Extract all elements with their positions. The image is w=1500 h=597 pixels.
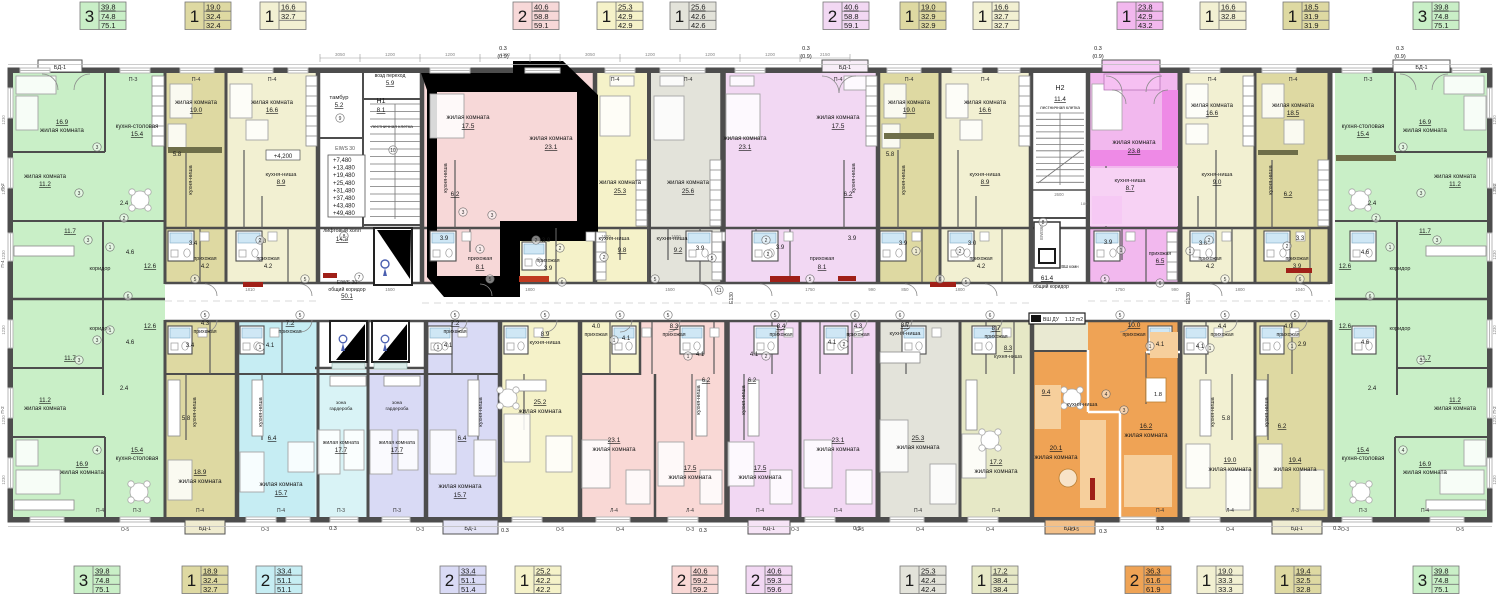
svg-text:О-5: О-5 [121,527,130,533]
svg-text:(0.9): (0.9) [497,54,508,60]
svg-text:П-3: П-3 [133,508,141,514]
svg-text:О-5: О-5 [1071,527,1080,533]
svg-text:0.3: 0.3 [1333,526,1341,532]
svg-text:2: 2 [959,249,962,255]
svg-text:1: 1 [1389,245,1392,251]
svg-text:1230: 1230 [1492,115,1497,125]
svg-text:4.2: 4.2 [201,264,210,270]
svg-text:18.9: 18.9 [203,567,218,576]
svg-text:12.6: 12.6 [1339,263,1352,270]
svg-text:прихожая: прихожая [1285,256,1308,262]
svg-text:16.6: 16.6 [266,107,279,114]
svg-text:3: 3 [85,7,94,26]
svg-text:жилая комната: жилая комната [1272,103,1314,109]
svg-text:11: 11 [716,288,721,294]
svg-text:5: 5 [454,313,457,319]
svg-text:прихожая: прихожая [846,332,869,338]
svg-text:прихожая: прихожая [443,329,466,335]
svg-text:17.7: 17.7 [391,447,404,454]
svg-text:59.6: 59.6 [767,585,782,594]
svg-text:коридор: коридор [90,266,111,272]
svg-text:39.8: 39.8 [95,567,110,576]
svg-text:51.4: 51.4 [461,585,476,594]
svg-text:4.1: 4.1 [622,336,631,342]
svg-text:H1: H1 [377,98,386,105]
svg-text:зона: зона [336,401,346,406]
svg-text:Л-4: Л-4 [610,508,618,514]
svg-text:E130: E130 [1186,292,1192,304]
svg-text:П-4: П-4 [905,77,914,83]
svg-text:38.4: 38.4 [993,576,1008,585]
svg-text:кухня-столовая: кухня-столовая [1342,124,1385,130]
svg-text:жилая комната: жилая комната [446,114,490,121]
svg-text:жилая комната: жилая комната [1434,406,1476,412]
svg-text:75.1: 75.1 [1434,585,1449,594]
svg-text:жилая комната: жилая комната [1034,454,1078,461]
svg-text:2.4: 2.4 [120,386,129,392]
svg-text:1800: 1800 [525,287,535,292]
svg-text:жилая комната: жилая комната [24,174,66,180]
svg-text:32.8: 32.8 [1296,585,1311,594]
svg-text:2: 2 [1375,216,1378,222]
svg-text:19.0: 19.0 [903,107,916,114]
svg-text:EIWS 30: EIWS 30 [337,280,358,286]
svg-text:прихожая: прихожая [969,256,992,262]
svg-text:П-3: П-3 [337,508,345,514]
svg-text:коридор: коридор [1390,266,1411,272]
svg-text:2: 2 [445,571,454,590]
svg-text:32.7: 32.7 [203,585,218,594]
svg-text:гардероба: гардероба [330,406,353,412]
svg-text:19.0: 19.0 [190,107,203,114]
svg-text:6.2: 6.2 [748,378,757,384]
svg-text:П-4: П-4 [834,508,842,514]
svg-text:16.6: 16.6 [1221,3,1236,12]
svg-text:19.4: 19.4 [1296,567,1311,576]
svg-text:прихожая: прихожая [278,329,301,335]
svg-text:4: 4 [1402,448,1405,454]
svg-text:6.4: 6.4 [268,435,277,442]
svg-text:ВШ комн: ВШ комн [1061,264,1079,269]
svg-text:6: 6 [561,280,564,286]
svg-text:+4,200: +4,200 [274,154,293,160]
svg-text:42.6: 42.6 [691,12,706,21]
svg-text:БД-1: БД-1 [54,65,66,71]
svg-text:лестничная клетка: лестничная клетка [1040,105,1080,110]
svg-text:8.9: 8.9 [277,179,286,186]
svg-text:П-4: П-4 [611,77,620,83]
svg-text:+19,480: +19,480 [333,173,356,179]
svg-text:50.1: 50.1 [341,294,353,300]
svg-text:40.6: 40.6 [534,3,549,12]
svg-text:5: 5 [965,280,968,286]
svg-text:жилая комната: жилая комната [1403,127,1447,134]
svg-text:П-3: П-3 [393,508,401,514]
svg-text:5: 5 [809,277,812,283]
svg-text:990: 990 [1171,287,1179,292]
svg-text:кухня-ниша: кухня-ниша [188,164,194,194]
svg-text:кухня-ниша: кухня-ниша [1268,164,1274,194]
svg-text:33.4: 33.4 [277,567,292,576]
svg-text:15.7: 15.7 [275,490,288,497]
svg-text:1: 1 [437,345,440,351]
svg-text:42.4: 42.4 [921,585,936,594]
svg-text:59.2: 59.2 [693,585,708,594]
svg-text:кухня-ниша: кухня-ниша [258,396,264,426]
svg-text:О-3: О-3 [261,527,270,533]
svg-text:6: 6 [854,313,857,319]
svg-text:5.8: 5.8 [1222,416,1231,422]
svg-text:гардероба: гардероба [386,406,409,412]
svg-text:25.3: 25.3 [921,567,936,576]
svg-text:1800: 1800 [1235,287,1245,292]
svg-text:П-4: П-4 [192,77,201,83]
svg-text:О-4: О-4 [916,527,925,533]
svg-text:ВШ ДУ: ВШ ДУ [1043,317,1060,323]
svg-text:П-4: П-4 [1421,508,1429,514]
svg-text:3: 3 [1436,238,1439,244]
svg-text:2.4: 2.4 [1368,386,1377,392]
svg-text:75.1: 75.1 [1434,21,1449,30]
svg-text:П-4: П-4 [1208,77,1217,83]
svg-text:1: 1 [1209,346,1212,352]
svg-text:1: 1 [977,571,986,590]
svg-text:БД-1: БД-1 [1291,526,1303,532]
svg-text:40.6: 40.6 [844,3,859,12]
svg-text:1230: 1230 [1,250,6,260]
svg-text:5: 5 [204,313,207,319]
svg-text:жилая комната: жилая комната [379,440,415,446]
svg-text:П-4: П-4 [0,260,5,268]
svg-text:5: 5 [304,277,307,283]
svg-text:2: 2 [123,216,126,222]
svg-text:11.2: 11.2 [1449,181,1461,188]
svg-text:4.1: 4.1 [1196,344,1205,350]
svg-text:59.2: 59.2 [693,576,708,585]
svg-text:17.2: 17.2 [990,459,1003,466]
svg-text:3.9: 3.9 [848,236,857,242]
svg-text:1230: 1230 [1492,415,1497,425]
svg-text:1: 1 [905,7,914,26]
svg-text:59.1: 59.1 [844,21,859,30]
svg-text:кухня-столовая: кухня-столовая [1342,456,1385,462]
svg-text:74.8: 74.8 [95,576,110,585]
svg-text:42.2: 42.2 [536,576,551,585]
svg-text:О-5: О-5 [556,527,565,533]
svg-text:1: 1 [109,328,112,334]
svg-text:(0.9): (0.9) [800,54,811,60]
svg-text:жилая комната: жилая комната [667,180,709,186]
svg-text:кухня-ниша: кухня-ниша [1210,396,1216,426]
svg-text:жилая комната: жилая комната [1208,466,1252,473]
svg-text:42.2: 42.2 [536,585,551,594]
svg-text:180: 180 [1081,201,1088,206]
svg-text:1.12 m2: 1.12 m2 [1065,317,1083,323]
svg-text:5: 5 [544,313,547,319]
svg-text:кухня-столовая: кухня-столовая [116,124,159,130]
svg-text:2: 2 [535,238,538,244]
svg-text:кухня-ниша: кухня-ниша [192,396,198,426]
svg-text:кухня-ниша: кухня-ниша [1115,178,1147,184]
svg-text:3: 3 [79,571,88,590]
svg-text:8.7: 8.7 [992,325,1001,332]
svg-text:5: 5 [1104,277,1107,283]
svg-text:11.7: 11.7 [64,355,76,362]
svg-text:жилая комната: жилая комната [599,180,641,186]
svg-text:42.4: 42.4 [921,576,936,585]
svg-text:1200: 1200 [445,52,456,57]
svg-text:П-2: П-2 [1492,406,1497,414]
svg-text:61.6: 61.6 [1146,576,1161,585]
svg-text:Л-3: Л-3 [1291,508,1299,514]
svg-text:П-4: П-4 [268,77,277,83]
svg-text:12.6: 12.6 [144,263,157,270]
svg-text:2: 2 [603,255,606,261]
svg-text:0.3: 0.3 [802,46,810,52]
svg-text:П-4: П-4 [196,508,204,514]
svg-text:Л-4: Л-4 [1226,508,1234,514]
svg-text:1200: 1200 [385,52,396,57]
svg-text:E130: E130 [729,292,735,304]
svg-text:31.9: 31.9 [1304,12,1319,21]
svg-text:1: 1 [1149,344,1152,350]
svg-text:11.2: 11.2 [39,181,51,188]
svg-text:16.6: 16.6 [1206,110,1219,117]
svg-text:6.2: 6.2 [451,191,460,198]
svg-text:4.0: 4.0 [1284,324,1293,330]
svg-text:15.4: 15.4 [1357,447,1370,454]
svg-text:кухня-ниша: кухня-ниша [890,331,922,337]
svg-text:32.7: 32.7 [281,12,296,21]
svg-text:1: 1 [978,7,987,26]
svg-text:12.6: 12.6 [1339,323,1352,330]
svg-text:8.7: 8.7 [901,322,910,329]
svg-text:9: 9 [339,116,342,122]
svg-text:возд переход: возд переход [375,73,406,79]
svg-text:1230: 1230 [1492,185,1497,195]
svg-text:11.7: 11.7 [64,228,76,235]
svg-text:+37,480: +37,480 [333,196,356,202]
svg-text:3: 3 [1420,191,1423,197]
svg-text:16.9: 16.9 [1419,461,1432,468]
svg-text:2: 2 [1286,244,1289,250]
svg-text:6.5: 6.5 [1156,258,1165,265]
svg-text:5: 5 [711,256,714,262]
svg-text:2: 2 [518,7,527,26]
svg-text:2: 2 [843,342,846,348]
svg-text:1: 1 [1202,571,1211,590]
svg-text:4.3: 4.3 [854,324,863,330]
svg-text:кухня-ниша: кухня-ниша [696,384,702,414]
svg-text:1230: 1230 [1492,475,1497,485]
svg-text:БД-1: БД-1 [839,65,851,71]
svg-text:1800: 1800 [955,287,965,292]
svg-text:1: 1 [479,247,482,253]
svg-text:H2: H2 [1056,85,1065,92]
svg-text:3.9: 3.9 [899,241,908,247]
svg-text:5.8: 5.8 [182,416,191,422]
svg-text:51.1: 51.1 [277,585,292,594]
svg-text:18.9: 18.9 [194,469,207,476]
svg-text:жилая комната: жилая комната [1112,139,1156,146]
svg-text:42.9: 42.9 [618,21,633,30]
svg-text:2: 2 [828,7,837,26]
svg-text:42.6: 42.6 [691,21,706,30]
svg-text:прихожая: прихожая [1276,332,1299,338]
svg-text:32.9: 32.9 [921,12,936,21]
svg-text:0.3: 0.3 [1094,46,1102,52]
svg-text:9.0: 9.0 [1213,179,1222,186]
svg-text:7.2: 7.2 [286,320,295,327]
svg-text:4.6: 4.6 [1361,340,1370,346]
svg-text:19.0: 19.0 [921,3,936,12]
svg-text:33.3: 33.3 [1218,576,1233,585]
svg-text:3: 3 [1123,408,1126,414]
svg-text:1: 1 [602,7,611,26]
svg-text:кухня-столовая: кухня-столовая [116,456,159,462]
svg-text:19.0: 19.0 [1224,457,1237,464]
svg-text:3.0: 3.0 [968,241,977,247]
svg-text:прихожая: прихожая [1122,332,1145,338]
svg-text:1750: 1750 [1115,287,1125,292]
svg-text:О-3: О-3 [686,527,695,533]
svg-text:кухня-ниша: кухня-ниша [266,172,298,178]
svg-text:жилая комната: жилая комната [40,127,84,134]
svg-text:1230: 1230 [1,185,6,195]
svg-text:БД-1: БД-1 [763,526,775,532]
svg-text:2: 2 [765,354,768,360]
svg-text:25.2: 25.2 [536,567,551,576]
svg-text:1: 1 [1122,7,1131,26]
svg-text:1230: 1230 [1,475,6,485]
svg-text:1500: 1500 [665,287,675,292]
svg-text:коридор: коридор [1390,326,1411,332]
svg-text:15.7: 15.7 [454,492,467,499]
svg-text:10.0: 10.0 [1128,322,1141,329]
svg-text:П-4: П-4 [992,508,1000,514]
svg-text:5: 5 [1224,277,1227,283]
svg-text:23.1: 23.1 [739,144,752,151]
svg-text:4.1: 4.1 [1156,342,1165,348]
svg-text:1: 1 [675,7,684,26]
svg-text:О-5: О-5 [856,527,865,533]
svg-text:жилая комната: жилая комната [816,114,860,121]
svg-text:16.2: 16.2 [1140,423,1153,430]
svg-text:5.8: 5.8 [886,152,895,158]
svg-text:3.9: 3.9 [542,238,551,244]
svg-text:5.8: 5.8 [173,152,182,158]
svg-text:17.5: 17.5 [832,123,845,130]
svg-text:5: 5 [619,313,622,319]
svg-text:+31,480: +31,480 [333,188,356,194]
svg-text:4.6: 4.6 [126,250,135,256]
svg-text:2.9: 2.9 [1298,342,1307,348]
svg-text:6: 6 [127,294,130,300]
svg-text:прихожая: прихожая [810,256,835,262]
svg-text:25.3: 25.3 [912,435,925,442]
svg-text:25.2: 25.2 [534,399,547,406]
svg-text:1: 1 [1120,248,1123,254]
svg-text:39.8: 39.8 [101,3,116,12]
svg-text:4.4: 4.4 [1218,324,1227,330]
svg-text:2: 2 [559,246,562,252]
svg-text:жилая комната: жилая комната [738,474,782,481]
svg-text:1: 1 [1189,249,1192,255]
svg-text:5: 5 [667,313,670,319]
svg-text:0.3: 0.3 [499,46,507,52]
svg-text:4.6: 4.6 [126,340,135,346]
svg-text:0.3: 0.3 [699,528,707,534]
svg-text:17.5: 17.5 [754,465,767,472]
svg-text:16.6: 16.6 [994,3,1009,12]
svg-text:20.1: 20.1 [1050,445,1063,452]
svg-text:3.9: 3.9 [440,236,449,242]
svg-text:3: 3 [78,358,81,364]
svg-text:4.1: 4.1 [750,352,759,358]
svg-text:75.1: 75.1 [95,585,110,594]
svg-text:жилая комната: жилая комната [518,408,562,415]
svg-text:1: 1 [1288,7,1297,26]
svg-text:33.3: 33.3 [1218,585,1233,594]
svg-text:23.1: 23.1 [545,144,558,151]
svg-text:11.2: 11.2 [39,397,51,404]
svg-text:15.4: 15.4 [131,447,144,454]
svg-text:9.2: 9.2 [674,247,683,254]
svg-text:П-4: П-4 [1289,77,1298,83]
svg-text:4.3: 4.3 [201,321,210,327]
svg-text:+49,480: +49,480 [333,211,356,217]
svg-text:прихожая: прихожая [984,334,1007,340]
svg-text:6: 6 [989,313,992,319]
svg-text:15.4: 15.4 [131,131,144,138]
svg-text:6.2: 6.2 [702,378,711,384]
svg-text:прихожая: прихожая [193,329,216,335]
svg-text:О-3: О-3 [1341,527,1350,533]
svg-text:3: 3 [1420,358,1423,364]
svg-text:4.2: 4.2 [1206,264,1215,270]
svg-text:5: 5 [299,313,302,319]
svg-text:3: 3 [87,238,90,244]
svg-text:5: 5 [194,277,197,283]
svg-text:5.2: 5.2 [335,102,344,109]
svg-text:П-4: П-4 [834,77,843,83]
svg-text:тамбур: тамбур [330,95,349,101]
svg-text:23.8: 23.8 [1138,3,1153,12]
svg-text:жилая комната: жилая комната [592,446,636,453]
svg-text:1.8: 1.8 [1154,392,1162,398]
svg-text:1500: 1500 [385,287,395,292]
svg-text:3050: 3050 [585,52,596,57]
svg-text:БД-1: БД-1 [199,526,211,532]
svg-text:32.7: 32.7 [994,12,1009,21]
svg-text:74.8: 74.8 [1434,576,1449,585]
svg-text:1230: 1230 [1,115,6,125]
svg-text:32.4: 32.4 [206,12,221,21]
svg-text:О-5: О-5 [1456,527,1465,533]
svg-text:П-3: П-3 [1359,508,1367,514]
svg-text:БД-1: БД-1 [464,526,476,532]
svg-text:4: 4 [1105,392,1108,398]
svg-text:1: 1 [265,7,274,26]
svg-text:32.4: 32.4 [203,576,218,585]
svg-text:кухня-ниша: кухня-ниша [530,340,562,346]
svg-text:0.3: 0.3 [501,528,509,534]
svg-text:75.1: 75.1 [101,21,116,30]
svg-text:0.3: 0.3 [1156,526,1164,532]
svg-text:40.6: 40.6 [693,567,708,576]
svg-text:19.4: 19.4 [1289,457,1302,464]
svg-text:8.9: 8.9 [541,331,550,338]
